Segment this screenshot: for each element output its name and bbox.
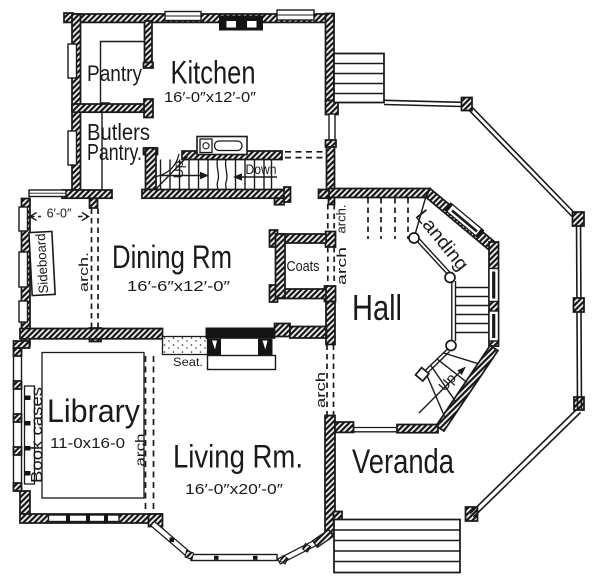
svg-text:6′-0″: 6′-0″ — [47, 207, 72, 221]
svg-text:Kitchen: Kitchen — [171, 55, 256, 91]
svg-text:Up: Up — [170, 160, 186, 178]
svg-text:arch: arch — [133, 434, 148, 467]
svg-text:Down: Down — [246, 161, 277, 177]
svg-text:Hall: Hall — [352, 287, 402, 328]
svg-text:Book cases: Book cases — [29, 387, 46, 483]
svg-text:11-0x16-0: 11-0x16-0 — [50, 436, 125, 452]
svg-text:arch.: arch. — [76, 252, 91, 292]
svg-text:Dining Rm: Dining Rm — [112, 239, 232, 275]
svg-text:arch: arch — [313, 372, 328, 408]
svg-text:Seat.: Seat. — [173, 357, 203, 369]
svg-text:16′-0″x12′-0″: 16′-0″x12′-0″ — [164, 89, 257, 106]
svg-text:Coats: Coats — [287, 258, 320, 275]
svg-text:Pantry.: Pantry. — [87, 139, 142, 165]
svg-text:Pantry: Pantry — [87, 61, 142, 86]
svg-text:Veranda: Veranda — [352, 443, 454, 481]
svg-text:16′-6″x12′-0″: 16′-6″x12′-0″ — [127, 278, 231, 295]
svg-text:Library: Library — [47, 393, 140, 429]
svg-text:arch: arch — [334, 247, 349, 285]
svg-text:16′-0″x20′-0″: 16′-0″x20′-0″ — [185, 481, 284, 498]
svg-text:Living Rm.: Living Rm. — [173, 439, 303, 475]
svg-text:arch.: arch. — [334, 205, 349, 234]
svg-text:Sideboard: Sideboard — [33, 233, 51, 294]
